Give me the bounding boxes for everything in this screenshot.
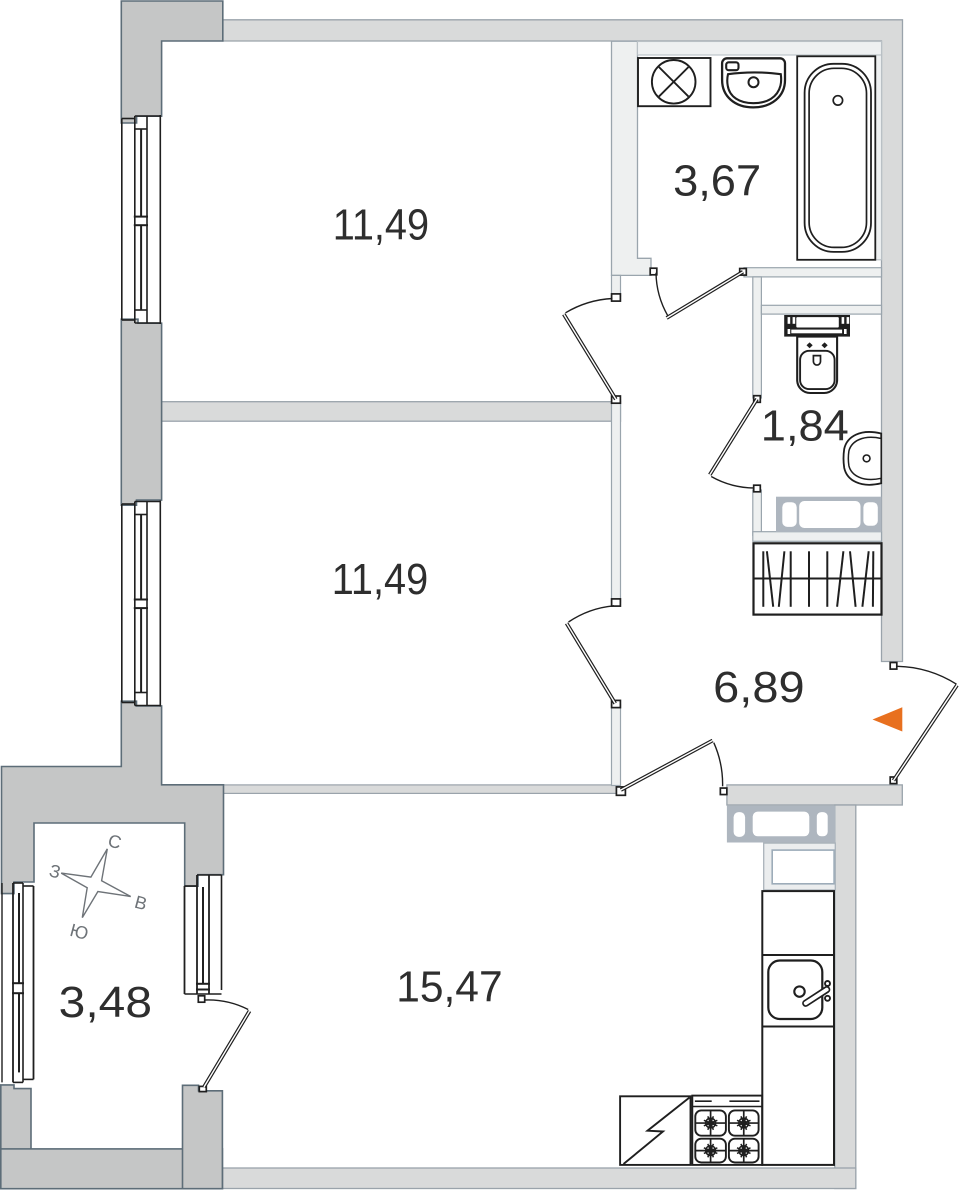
svg-text:11,49: 11,49 xyxy=(333,201,429,250)
svg-text:3,67: 3,67 xyxy=(673,156,761,205)
svg-text:6,89: 6,89 xyxy=(713,663,804,712)
svg-text:15,47: 15,47 xyxy=(396,963,502,1012)
svg-text:3,48: 3,48 xyxy=(59,978,152,1027)
svg-text:1,84: 1,84 xyxy=(761,402,849,451)
svg-text:11,49: 11,49 xyxy=(332,555,428,604)
